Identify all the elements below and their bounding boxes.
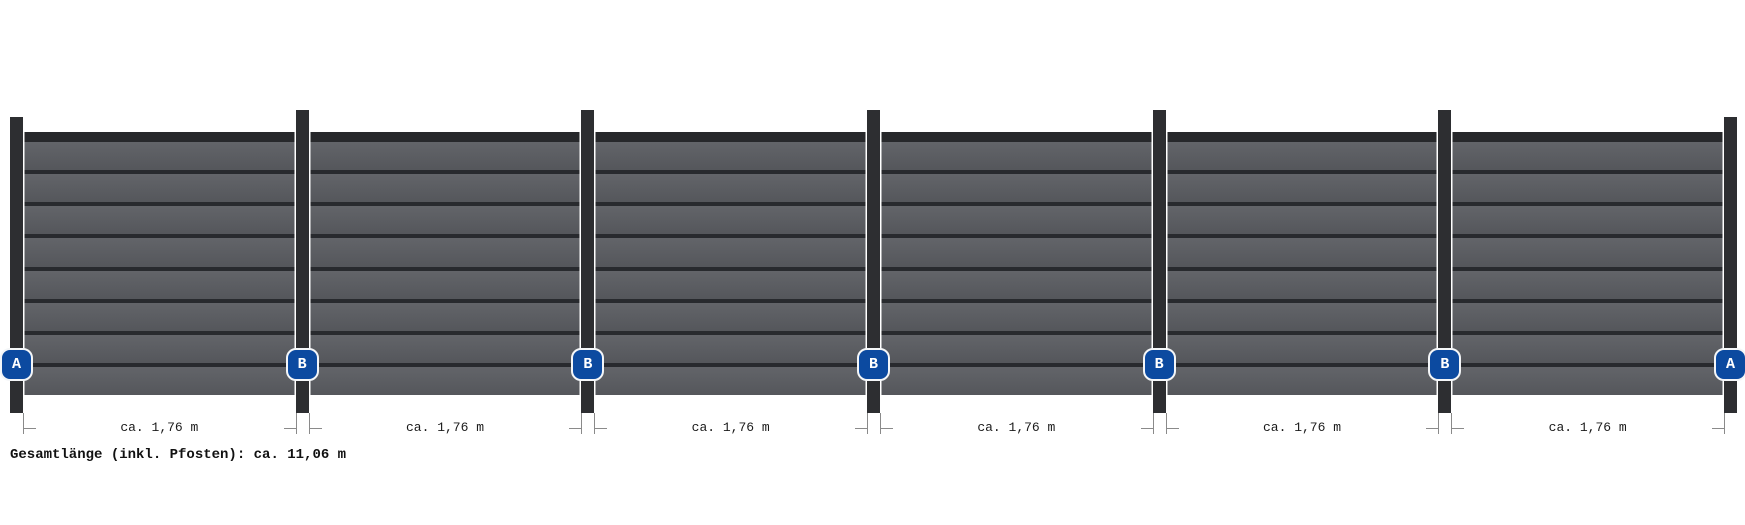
fence-plank: [594, 335, 867, 363]
post-type-badge: B: [1143, 348, 1176, 381]
fence-plank: [1166, 142, 1439, 170]
fence-plank: [1166, 174, 1439, 202]
dimension-tick-arm: [1452, 428, 1464, 429]
dimension-tick-arm: [595, 428, 607, 429]
dimension-label: ca. 1,76 m: [977, 420, 1055, 435]
fence-plank: [594, 174, 867, 202]
fence-plank: [880, 303, 1153, 331]
fence-panel: [594, 132, 867, 395]
dimension-tick: [1724, 413, 1725, 434]
fence-plank: [1166, 271, 1439, 299]
fence-panel: [880, 132, 1153, 395]
fence-plank: [1451, 238, 1724, 266]
dimension-tick: [296, 413, 297, 434]
panel-top-rail: [23, 132, 296, 142]
dimension-tick-arm: [1712, 428, 1724, 429]
post-type-badge: A: [0, 348, 33, 381]
fence-plank: [23, 367, 296, 395]
fence-plank: [594, 206, 867, 234]
dimension-tick-arm: [1426, 428, 1438, 429]
fence-plank: [594, 271, 867, 299]
plank-stack: [309, 142, 582, 395]
fence-plank: [309, 142, 582, 170]
fence-plank: [1451, 303, 1724, 331]
panel-top-rail: [880, 132, 1153, 142]
dimension-tick-arm: [569, 428, 581, 429]
plank-stack: [1166, 142, 1439, 395]
fence-panel: [309, 132, 582, 395]
dimension-tick-arm: [1167, 428, 1179, 429]
dimension-tick: [23, 413, 24, 434]
post-type-badge: B: [286, 348, 319, 381]
fence-plank: [880, 142, 1153, 170]
panel-top-rail: [1451, 132, 1724, 142]
fence-plank: [23, 174, 296, 202]
fence-diagram: Gesamtlänge (inkl. Pfosten): ca. 11,06 m…: [0, 0, 1745, 525]
fence-plank: [23, 335, 296, 363]
fence-plank: [309, 238, 582, 266]
dimension-label: ca. 1,76 m: [692, 420, 770, 435]
fence-plank: [309, 206, 582, 234]
dimension-label: ca. 1,76 m: [1549, 420, 1627, 435]
fence-plank: [309, 303, 582, 331]
fence-plank: [880, 367, 1153, 395]
fence-plank: [309, 174, 582, 202]
plank-stack: [1451, 142, 1724, 395]
post-type-badge: B: [571, 348, 604, 381]
fence-plank: [1451, 335, 1724, 363]
dimension-label: ca. 1,76 m: [406, 420, 484, 435]
fence-plank: [594, 142, 867, 170]
dimension-tick: [880, 413, 881, 434]
fence-plank: [1451, 142, 1724, 170]
dimension-label: ca. 1,76 m: [1263, 420, 1341, 435]
dimension-label: ca. 1,76 m: [120, 420, 198, 435]
dimension-tick-arm: [284, 428, 296, 429]
dimension-tick-arm: [24, 428, 36, 429]
fence-plank: [594, 303, 867, 331]
dimension-tick-arm: [310, 428, 322, 429]
fence-panel: [23, 132, 296, 395]
dimension-tick: [1451, 413, 1452, 434]
fence-plank: [594, 367, 867, 395]
dimension-tick: [1166, 413, 1167, 434]
fence-plank: [1451, 174, 1724, 202]
fence-plank: [1451, 367, 1724, 395]
total-length-label: Gesamtlänge (inkl. Pfosten): ca. 11,06 m: [10, 447, 346, 463]
fence-plank: [23, 303, 296, 331]
fence-plank: [1166, 238, 1439, 266]
dimension-tick-arm: [1141, 428, 1153, 429]
post-type-badge: A: [1714, 348, 1745, 381]
post-type-badge: B: [1428, 348, 1461, 381]
fence-plank: [880, 174, 1153, 202]
dimension-tick: [1153, 413, 1154, 434]
post-type-badge: B: [857, 348, 890, 381]
fence-plank: [23, 206, 296, 234]
dimension-tick: [309, 413, 310, 434]
dimension-tick-arm: [855, 428, 867, 429]
plank-stack: [23, 142, 296, 395]
plank-stack: [880, 142, 1153, 395]
panel-top-rail: [1166, 132, 1439, 142]
fence-plank: [880, 238, 1153, 266]
fence-plank: [1451, 206, 1724, 234]
fence-panel: [1166, 132, 1439, 395]
fence-plank: [23, 142, 296, 170]
panel-top-rail: [594, 132, 867, 142]
fence-plank: [594, 238, 867, 266]
panel-top-rail: [309, 132, 582, 142]
fence-plank: [309, 367, 582, 395]
fence-plank: [880, 206, 1153, 234]
dimension-tick: [594, 413, 595, 434]
dimension-tick-arm: [881, 428, 893, 429]
fence-plank: [880, 271, 1153, 299]
fence-plank: [1166, 335, 1439, 363]
dimension-tick: [1438, 413, 1439, 434]
fence-plank: [1166, 303, 1439, 331]
fence-plank: [23, 238, 296, 266]
fence-plank: [309, 335, 582, 363]
fence-plank: [1451, 271, 1724, 299]
plank-stack: [594, 142, 867, 395]
dimension-tick: [581, 413, 582, 434]
fence-plank: [23, 271, 296, 299]
fence-panel: [1451, 132, 1724, 395]
fence-plank: [1166, 206, 1439, 234]
fence-plank: [309, 271, 582, 299]
fence-plank: [880, 335, 1153, 363]
dimension-tick: [867, 413, 868, 434]
fence-plank: [1166, 367, 1439, 395]
